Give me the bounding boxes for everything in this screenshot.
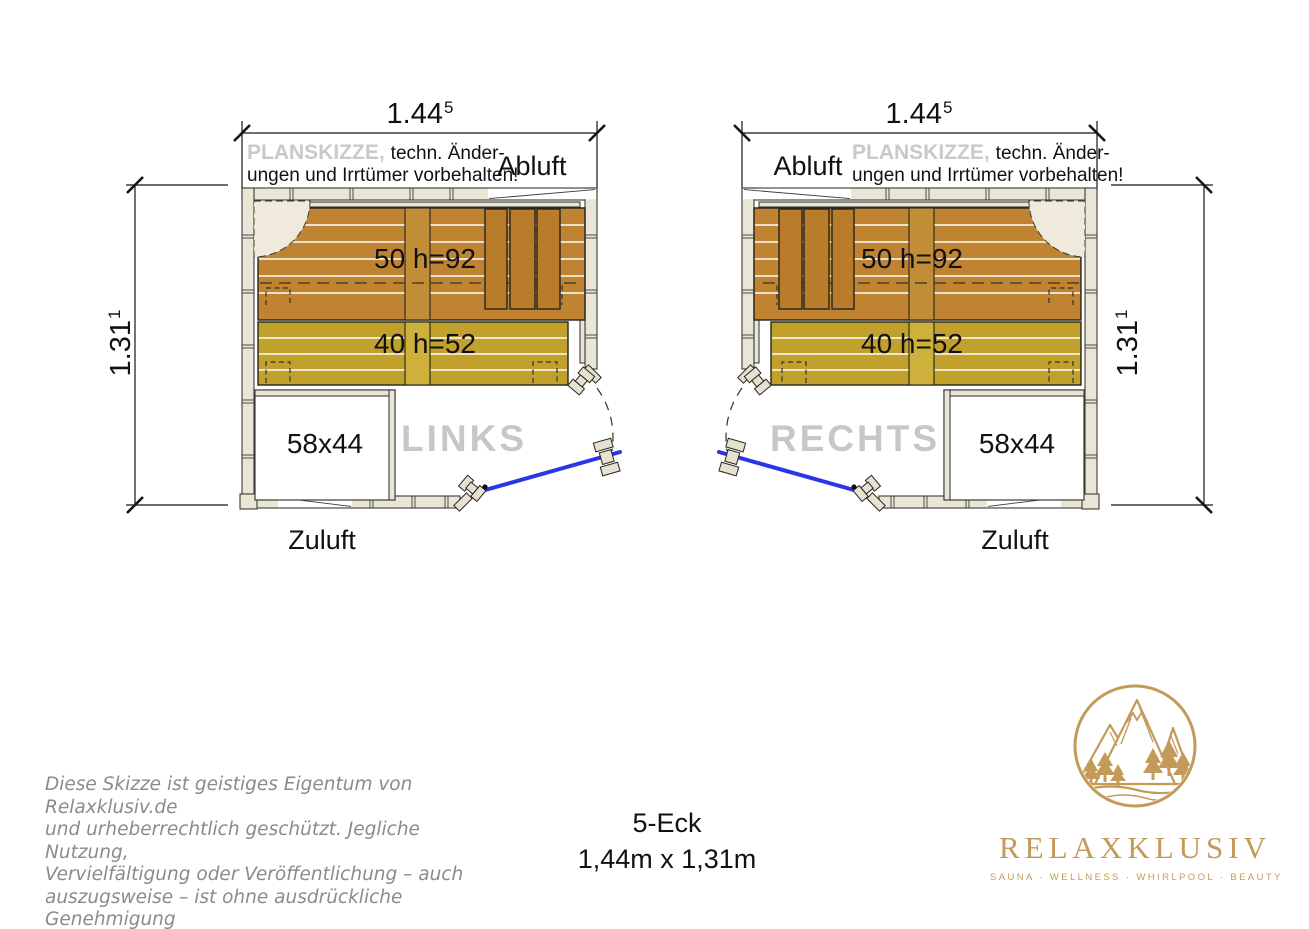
brand-name: RELAXKLUSIV <box>990 830 1280 866</box>
copyright-line: Vervielfältigung oder Veröffentlichung –… <box>45 864 475 887</box>
headrest <box>832 209 854 309</box>
floor-plan-right-drawing: 1.445 1.311 Abluft PLANSKIZZE,techn. Änd… <box>674 85 1239 560</box>
lower-bench-label: 40 h=52 <box>374 328 476 359</box>
abluft-label: Abluft <box>497 151 567 181</box>
height-dimension-label: 1.311 <box>105 310 137 377</box>
variant-watermark-rechts: RECHTS <box>770 418 940 459</box>
lower-bench-label: 40 h=52 <box>861 328 963 359</box>
mountain-emblem-icon <box>1065 680 1205 814</box>
abluft-label: Abluft <box>773 151 843 181</box>
model-dimensions: 1,44m x 1,31m <box>527 844 807 875</box>
model-caption: 5-Eck 1,44m x 1,31m <box>527 808 807 875</box>
copyright-line: auszugsweise – ist ohne ausdrückliche Ge… <box>45 887 475 929</box>
heater-size-label: 58x44 <box>287 428 363 459</box>
copyright-line: Diese Skizze ist geistiges Eigentum von … <box>45 774 475 819</box>
planskizze-note-line2: ungen und Irrtümer vorbehalten! <box>247 165 518 186</box>
dimension-height <box>126 177 228 513</box>
door-pivot <box>851 484 856 489</box>
zuluft-label: Zuluft <box>288 525 356 555</box>
headrest <box>537 209 560 309</box>
headrest <box>510 209 535 309</box>
headrest <box>779 209 802 309</box>
upper-bench-label: 50 h=92 <box>374 243 476 274</box>
height-dimension-label: 1.311 <box>1112 310 1144 377</box>
planskizze-note-line1: PLANSKIZZE,techn. Änder- <box>247 141 505 164</box>
floor-plan-right: 1.445 1.311 Abluft PLANSKIZZE,techn. Änd… <box>674 85 1239 560</box>
headrest <box>485 209 507 309</box>
plan-sheet: 1.445 1.311 PLANSKIZZE,techn. Änder- ung… <box>0 0 1309 929</box>
door-pivot <box>482 484 487 489</box>
heater-size-label: 58x44 <box>979 428 1055 459</box>
width-dimension-label: 1.445 <box>387 98 454 130</box>
upper-bench-label: 50 h=92 <box>861 243 963 274</box>
copyright-notice: Diese Skizze ist geistiges Eigentum von … <box>45 774 475 929</box>
floor-plan-left-drawing: 1.445 1.311 PLANSKIZZE,techn. Änder- ung… <box>100 85 665 560</box>
variant-watermark-links: LINKS <box>401 418 527 459</box>
planskizze-note-line2: ungen und Irrtümer vorbehalten! <box>852 165 1123 186</box>
planskizze-note-line1: PLANSKIZZE,techn. Änder- <box>852 141 1110 164</box>
brand-logo: RELAXKLUSIV SAUNA · WELLNESS · WHIRLPOOL… <box>990 680 1280 883</box>
abluft-vent <box>743 189 851 199</box>
headrest <box>804 209 829 309</box>
abluft-vent <box>488 189 596 199</box>
floor-plan-left: 1.445 1.311 PLANSKIZZE,techn. Änder- ung… <box>100 85 665 560</box>
zuluft-label: Zuluft <box>981 525 1049 555</box>
width-dimension-label: 1.445 <box>886 98 953 130</box>
copyright-line: und urheberrechtlich geschützt. Jegliche… <box>45 819 475 864</box>
brand-tagline: SAUNA · WELLNESS · WHIRLPOOL · BEAUTY <box>990 872 1280 883</box>
model-name: 5-Eck <box>527 808 807 839</box>
